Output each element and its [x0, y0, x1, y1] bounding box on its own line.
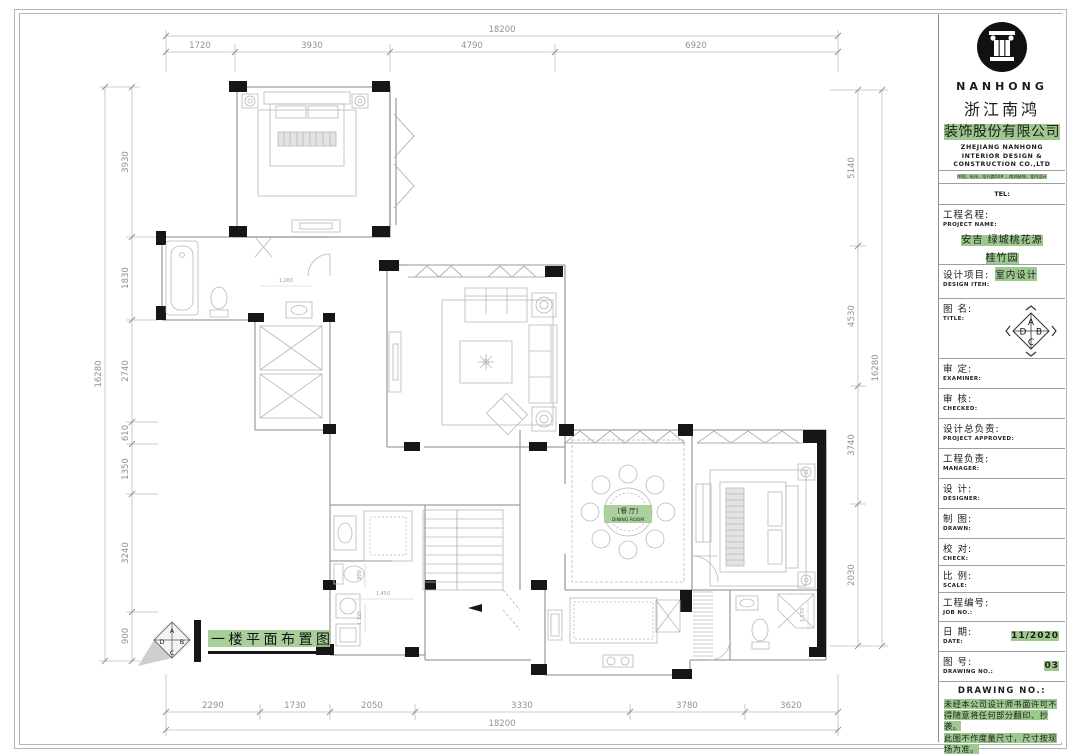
dim-top-total: 18200: [488, 25, 515, 35]
field-label-en: DRAWING NO.:: [943, 669, 1061, 675]
floor-plan: 18200 1720 3930 4790 6920 2290 1730 2050…: [20, 14, 938, 742]
field-label-en: EXAMINER:: [943, 376, 1061, 382]
field-checked: 审 核: CHECKED:: [939, 388, 1065, 418]
drawing-sheet: 18200 1720 3930 4790 6920 2290 1730 2050…: [0, 0, 1080, 756]
staircase: [423, 510, 520, 630]
field-label-en: DESIGN ITEH:: [943, 282, 1061, 288]
field-label-cn: 工程编号:: [943, 595, 1061, 609]
dining-room-label-en: DINING ROOM: [612, 517, 645, 523]
windows: [394, 114, 803, 443]
plan-compass-a: A: [170, 627, 175, 635]
notes-block: DRAWING NO.: 未经本公司设计师书面许可不得随意将任何部分翻印、抄袭。…: [939, 681, 1065, 756]
dim-bottom-5: 3780: [676, 701, 698, 711]
field-label-en: MANAGER:: [943, 466, 1061, 472]
plan-title: 一楼平面布置图: [211, 632, 334, 648]
plan-title-group: A D B C 一楼平面布置图: [138, 620, 334, 666]
field-label-en: SCALE:: [943, 583, 1061, 589]
walls: [162, 87, 826, 675]
field-title: 图 名: TITLE: A B C D: [939, 298, 1065, 358]
dim-inner-w: 1,450: [376, 591, 390, 597]
field-label-en: CHECK:: [943, 556, 1061, 562]
field-scale: 比 例: SCALE:: [939, 565, 1065, 592]
dim-inner-sink: 1,260: [279, 278, 293, 284]
field-examiner: 审 定: EXAMINER:: [939, 358, 1065, 388]
field-label-cn: 工程负责:: [943, 451, 1061, 465]
structural-columns: [156, 81, 826, 679]
dim-top-3: 4790: [461, 41, 483, 51]
dimension-labels: 18200 1720 3930 4790 6920 2290 1730 2050…: [94, 25, 881, 729]
field-project-name: 工程名程: PROJECT NAME: 安吉 绿城桃花源 桂竹园: [939, 204, 1065, 264]
dim-top-1: 1720: [189, 41, 211, 51]
field-drawing-no: 图 号: DRAWING NO.: 03: [939, 651, 1065, 681]
compass-letter-bottom: C: [1028, 338, 1034, 348]
company-name-en: ZHEJIANG NANHONGINTERIOR DESIGN &CONSTRU…: [939, 144, 1065, 170]
field-label-cn: 设计总负责:: [943, 421, 1061, 435]
dim-left-6: 3240: [121, 542, 131, 564]
dim-right-total: 16280: [871, 354, 881, 381]
field-label-en: CHECKED:: [943, 406, 1061, 412]
field-label-cn: 审 核:: [943, 391, 1061, 405]
field-label-en: PROJECT APPROVED:: [943, 436, 1061, 442]
bathroom-2-fixtures: [334, 511, 412, 646]
field-label-en: JOB NO.:: [943, 610, 1061, 616]
compass-letter-top: A: [1028, 318, 1035, 328]
dining-room: [餐 厅] DINING ROOM: [572, 440, 684, 582]
company-address: 中国，杭州，绍兴路50# ，南鸿装饰，室内设计: [939, 170, 1065, 183]
nanhong-column-logo-icon: [975, 20, 1029, 74]
living-room-furniture: [389, 288, 557, 435]
kitchen-fixtures: [548, 592, 730, 667]
tel-label: TEL:: [939, 183, 1065, 204]
drawing-no-value: 03: [1044, 661, 1059, 671]
field-project-approved: 设计总负责: PROJECT APPROVED:: [939, 418, 1065, 448]
field-label-cn: 设计项目:: [943, 267, 989, 281]
dim-right-4: 2030: [847, 564, 857, 586]
project-value-line1: 安吉 绿城桃花源: [943, 231, 1061, 246]
dim-left-3: 2740: [121, 360, 131, 382]
dim-right-1: 5140: [847, 157, 857, 179]
design-item-value: 室内设计: [995, 267, 1037, 281]
field-design-item: 设计项目: 室内设计 DESIGN ITEH:: [939, 264, 1065, 298]
dim-bottom-4: 3330: [511, 701, 533, 711]
company-name-cn-2: 装饰股份有限公司: [939, 121, 1065, 141]
dim-left-5: 1350: [121, 458, 131, 480]
orientation-compass-icon: A B C D: [1005, 305, 1057, 357]
dim-bottom-1: 2290: [202, 701, 224, 711]
dim-bottom-3: 2050: [361, 701, 383, 711]
dim-left-total: 16280: [94, 360, 104, 387]
dim-bottom-2: 1730: [284, 701, 306, 711]
field-drawn: 制 图: DRAWN:: [939, 508, 1065, 538]
title-block: NANHONG 浙江南鸿 装饰股份有限公司 ZHEJIANG NANHONGIN…: [938, 14, 1065, 742]
bathroom-1-fixtures: [166, 241, 330, 318]
dim-left-4: 610: [121, 425, 131, 441]
field-label-cn: 校 对:: [943, 541, 1061, 555]
plan-compass-d: D: [159, 638, 164, 646]
field-label-cn: 制 图:: [943, 511, 1061, 525]
brand-name: NANHONG: [939, 80, 1065, 93]
field-job-no: 工程编号: JOB NO.:: [939, 592, 1065, 621]
company-name-cn-1: 浙江南鸿: [939, 96, 1065, 120]
inner-dimensions: 1,260 1,450 800 1,125 1,570: [260, 278, 808, 633]
plan-compass-b: B: [180, 638, 184, 646]
dim-right-2: 4530: [847, 305, 857, 327]
field-designer: 设 计: DESIGNER:: [939, 478, 1065, 508]
field-label-cn: 审 定:: [943, 361, 1061, 375]
compass-letter-left: D: [1020, 327, 1027, 337]
dim-left-7: 900: [121, 628, 131, 644]
dim-bottom-total: 18200: [488, 719, 515, 729]
wardrobe-closet: [260, 326, 322, 418]
field-label-en: DRAWN:: [943, 526, 1061, 532]
plan-title-underline: [208, 651, 332, 654]
field-label-cn: 工程名程:: [943, 207, 1061, 221]
dining-room-label-cn: [餐 厅]: [618, 506, 638, 515]
note-line-1: 未经本公司设计师书面许可不得随意将任何部分翻印、抄袭。: [944, 699, 1060, 733]
field-check: 校 对: CHECK:: [939, 538, 1065, 565]
field-date: 日 期: DATE: 11/2020: [939, 621, 1065, 651]
dim-left-2: 1830: [121, 267, 131, 289]
project-value-line2: 桂竹园: [943, 249, 1061, 264]
date-value: 11/2020: [1011, 631, 1059, 641]
field-label-en: DESIGNER:: [943, 496, 1061, 502]
company-logo-block: NANHONG 浙江南鸿 装饰股份有限公司 ZHEJIANG NANHONGIN…: [939, 14, 1065, 170]
field-label-en: PROJECT NAME:: [943, 222, 1061, 228]
compass-letter-right: B: [1036, 327, 1042, 337]
note-line-2: 此图不作度量尺寸，尺寸按现场为准。: [944, 733, 1060, 756]
dim-top-2: 3930: [301, 41, 323, 51]
field-manager: 工程负责: MANAGER:: [939, 448, 1065, 478]
plan-compass-c: C: [170, 649, 175, 657]
dim-left-1: 3930: [121, 151, 131, 173]
field-label-cn: 图 号:: [943, 654, 1061, 668]
dim-top-4: 6920: [685, 41, 707, 51]
dim-bottom-6: 3620: [780, 701, 802, 711]
field-label-cn: 比 例:: [943, 568, 1061, 582]
bedroom-2-furniture: [692, 464, 815, 588]
bedroom-1-furniture: [242, 92, 368, 257]
notes-header: DRAWING NO.:: [944, 686, 1060, 696]
field-label-cn: 设 计:: [943, 481, 1061, 495]
dim-right-3: 3740: [847, 434, 857, 456]
